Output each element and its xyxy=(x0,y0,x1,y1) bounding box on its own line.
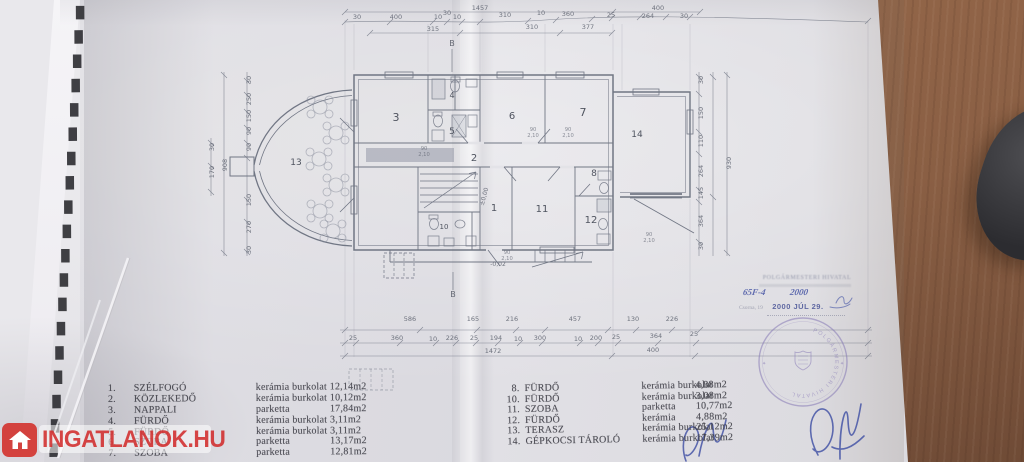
legend-room-name: KÖZLEKEDŐ xyxy=(134,393,196,404)
legend-room-name: GÉPKOCSI TÁROLÓ xyxy=(525,434,620,447)
house-icon-glyph xyxy=(8,428,32,452)
stamp-dotted-line xyxy=(767,315,845,316)
watermark-text: INGATLANOK.HU xyxy=(42,426,225,454)
stamp-city-line: Csorna, 19 xyxy=(739,305,763,311)
legend-room-name: NAPPALI xyxy=(134,404,177,415)
legend-num: 1. xyxy=(94,383,116,394)
legend-material: kerámia burkolat xyxy=(256,425,327,436)
stamp-reference-row: 65F-4 2000 xyxy=(743,287,873,297)
legend-area: 12,81m2 xyxy=(330,446,367,457)
legend-area: 3,11m2 xyxy=(330,414,361,425)
house-icon xyxy=(2,423,37,457)
paper-shadow-top xyxy=(60,0,880,26)
legend-material: kerámia burkolat xyxy=(256,381,327,392)
room-legend-right: 8.FÜRDŐkerámia burkolat4,88m2 10.FÜRDŐke… xyxy=(497,378,760,447)
legend-area: 12,14m2 xyxy=(330,381,367,392)
legend-material: kerámia burkolat xyxy=(256,392,327,403)
stamp-date: 2000 JÚL 29. xyxy=(772,302,823,311)
legend-num: 3. xyxy=(94,405,116,416)
legend-area: 3,11m2 xyxy=(330,425,361,436)
paper-fold-crease xyxy=(452,0,494,462)
stamp-office-line: POLGÁRMESTERI HIVATAL xyxy=(737,275,877,281)
legend-room-name: SZÉLFOGÓ xyxy=(134,382,187,393)
legend-area: 17,39m2 xyxy=(696,432,733,444)
legend-material: parketta xyxy=(256,447,290,458)
stamp-ref-number: 65F-4 xyxy=(742,287,766,297)
legend-area: 17,84m2 xyxy=(330,403,367,414)
legend-material: kerámia burkolat xyxy=(256,414,327,425)
paper-shadow-right xyxy=(812,0,904,462)
official-stamp-block: POLGÁRMESTERI HIVATAL 65F-4 2000 Csorna,… xyxy=(737,275,877,325)
photo-of-floorplan-document: 3 4 5 2 6 7 14 13 1 10 11 8 12 30 400 10… xyxy=(0,0,1024,462)
legend-num: 2. xyxy=(94,394,116,405)
legend-area: 10,12m2 xyxy=(330,392,367,403)
legend-area: 13,17m2 xyxy=(330,436,367,447)
legend-num: 14. xyxy=(498,436,520,447)
stamp-ref-year: 2000 xyxy=(789,287,808,297)
legend-material: parketta xyxy=(256,436,290,447)
stamp-date-row: Csorna, 19 2000 JÚL 29. xyxy=(739,302,877,311)
legend-material: parketta xyxy=(256,403,290,414)
